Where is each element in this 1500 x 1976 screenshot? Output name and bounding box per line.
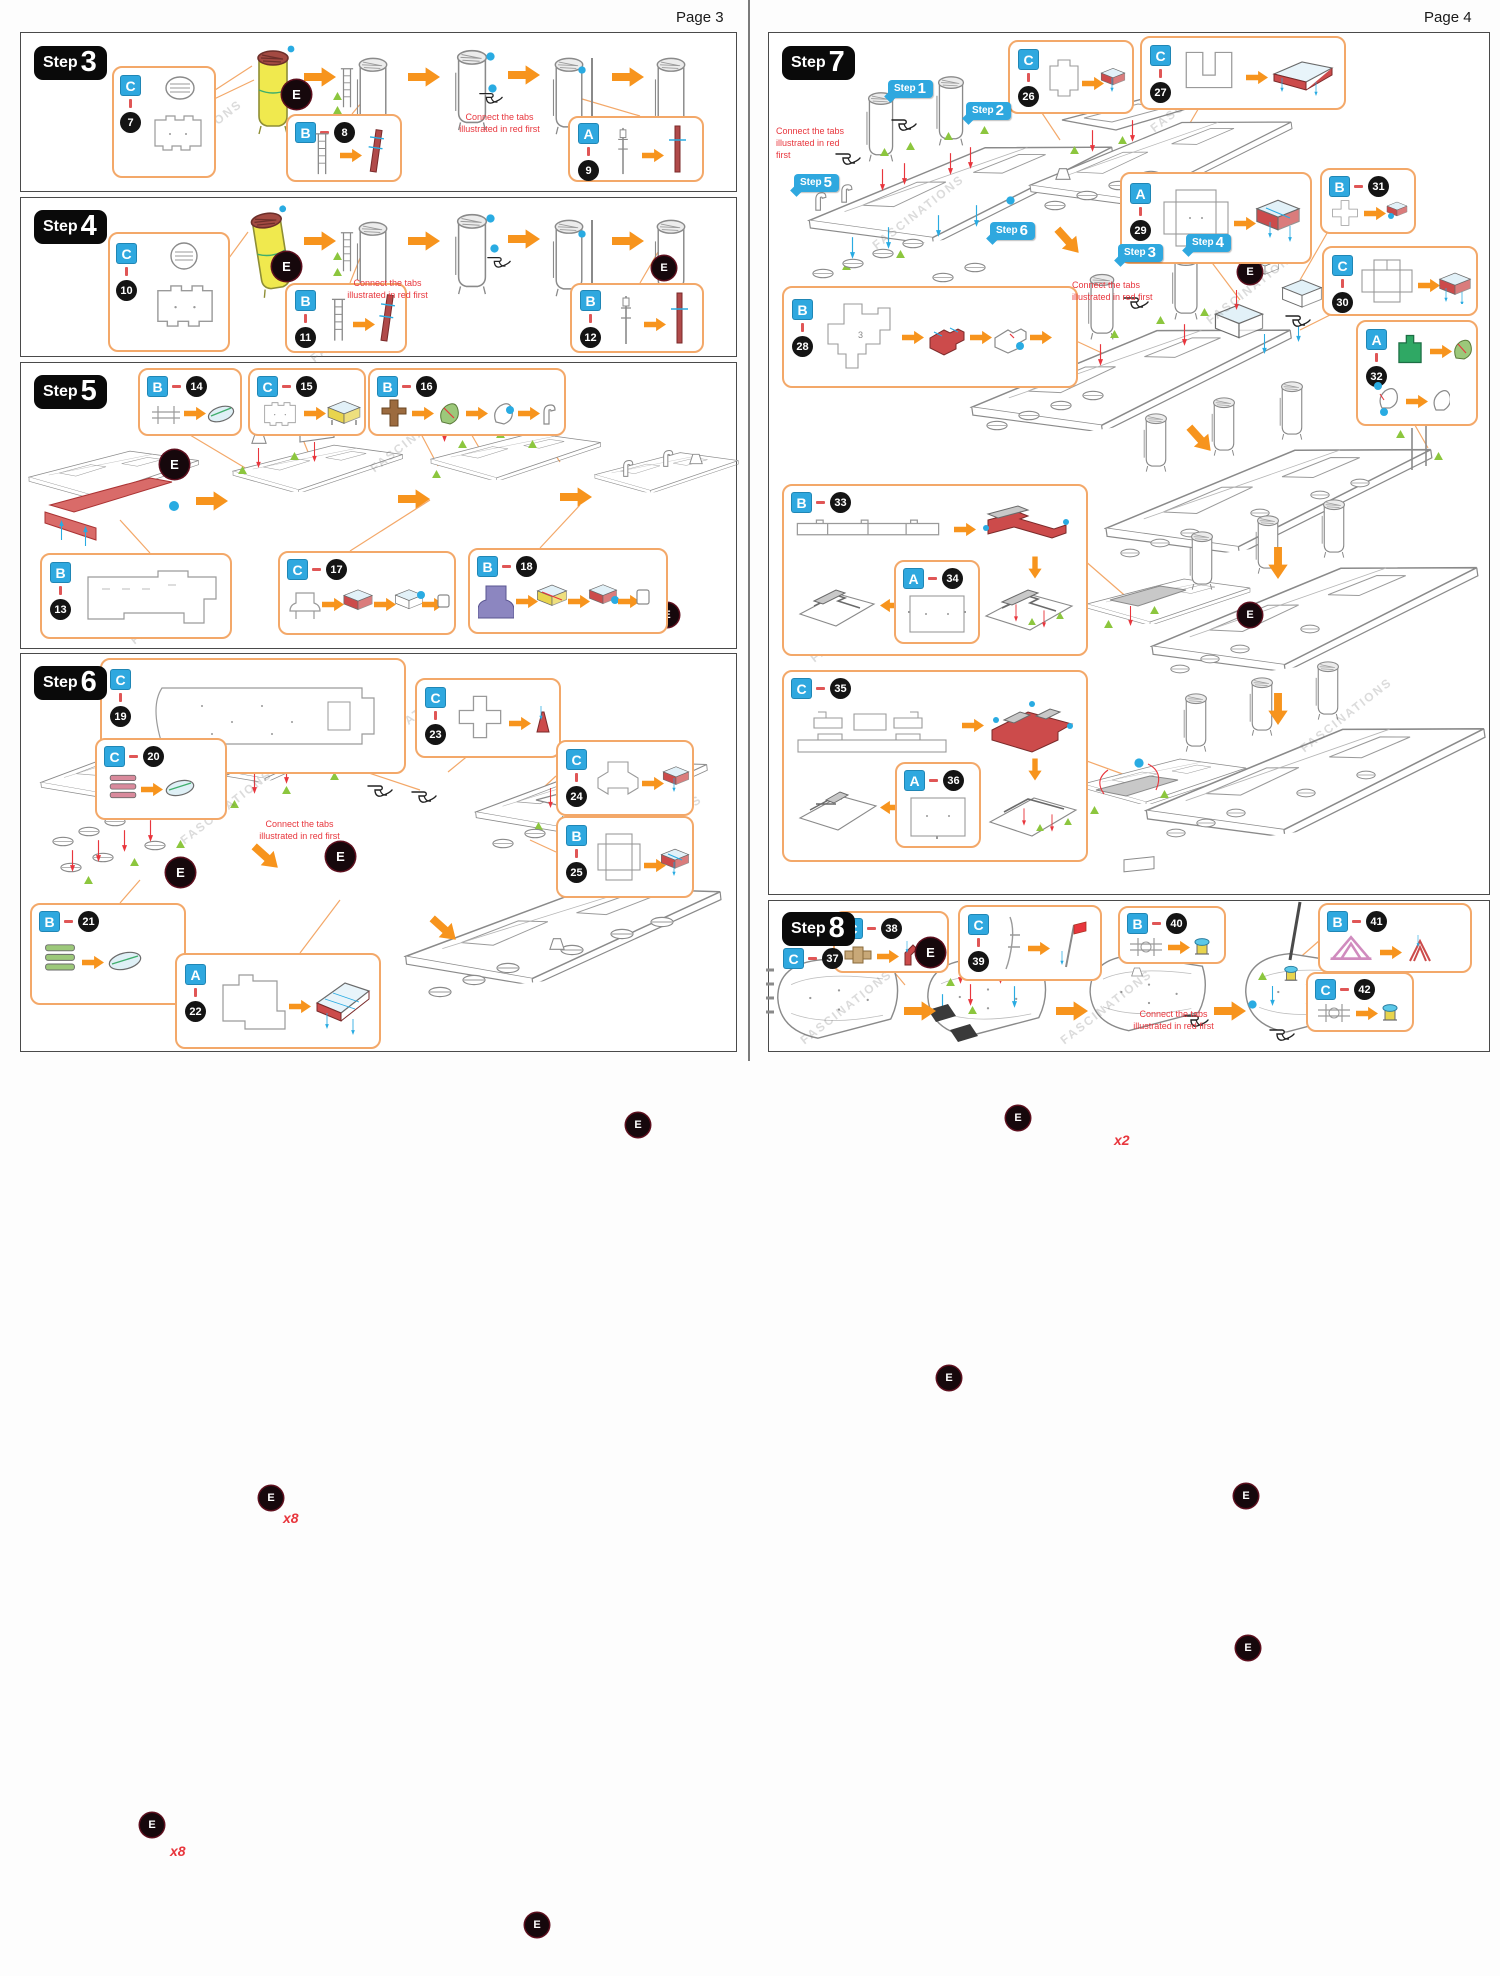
dash (125, 267, 128, 276)
dash (59, 586, 62, 595)
dash (929, 779, 938, 782)
assembled-part-diagram (538, 400, 558, 428)
part-number-badge: 38 (881, 918, 902, 939)
assembled-part-diagram (1438, 270, 1472, 304)
assembled-part-diagram (666, 124, 690, 176)
callout-C26: C26 E (1008, 40, 1134, 114)
arrow-right (516, 594, 538, 609)
part-letter-badge: C (288, 560, 307, 579)
dash (977, 938, 980, 947)
assembled-part-diagram (796, 578, 876, 644)
arrow-right (954, 522, 976, 537)
callout-B41: B41 E x2 (1318, 903, 1472, 973)
part-letter-badge: C (1019, 50, 1038, 69)
flat-part-diagram (1328, 933, 1376, 967)
part-number-badge: 40 (1166, 913, 1187, 934)
flat-part-diagram (478, 580, 514, 622)
arrow-right (466, 406, 488, 421)
dash (129, 99, 132, 108)
part-letter-badge: C (784, 949, 803, 968)
arrow-right (902, 330, 924, 345)
dash (808, 957, 817, 960)
callout-C24: C24 E (556, 740, 694, 816)
part-number-badge: 14 (186, 376, 207, 397)
part-letter-badge: B (581, 291, 600, 310)
e-badge: E (259, 1486, 283, 1510)
callout-A36: A36 (895, 762, 981, 848)
part-number-badge: 39 (968, 951, 989, 972)
callout-B31: B31 E (1320, 168, 1416, 234)
callout-B28: B28 3 E (782, 286, 1078, 388)
dash (816, 501, 825, 504)
flat-part-diagram (996, 913, 1026, 975)
dash (1152, 922, 1161, 925)
e-badge: E (272, 252, 301, 281)
part-letter-badge: C (121, 76, 140, 95)
arrow-right (518, 406, 540, 421)
dash (1341, 279, 1344, 288)
part-letter-badge: C (426, 688, 445, 707)
callout-A22: A22 E (175, 953, 381, 1049)
cyan-dot-marker (168, 500, 180, 512)
part-letter-badge: B (1128, 914, 1147, 933)
e-badge: E (1006, 1106, 1030, 1130)
part-letter-badge: B (378, 377, 397, 396)
flat-part-diagram (1394, 330, 1428, 370)
assembled-part-diagram (364, 128, 390, 176)
callout-C23: C23 E (415, 678, 561, 758)
part-number-badge: 29 (1130, 220, 1151, 241)
e-badge: E (937, 1366, 961, 1390)
arrow-right (1028, 941, 1050, 956)
red-note-step7a: Connect the tabs illustrated in red firs… (776, 125, 854, 161)
part-number-badge: 37 (822, 948, 843, 969)
assembled-part-diagram (990, 316, 1030, 356)
flat-part-diagram (302, 130, 342, 176)
red-note-step7b: Connect the tabs illustrated in red firs… (1072, 279, 1154, 303)
flat-part-diagram (794, 700, 952, 760)
flat-part-diagram (1330, 198, 1362, 228)
arrow-right (412, 406, 434, 421)
callout-B25: B25 E (556, 816, 694, 898)
e-badge: E (916, 938, 945, 967)
page-3-label: Page 3 (676, 9, 724, 26)
e-badge: E (282, 80, 311, 109)
part-letter-badge: B (1328, 912, 1347, 931)
flat-part-diagram (594, 828, 644, 886)
arrow-right (509, 716, 531, 731)
arrow-down (1028, 557, 1043, 579)
dash (282, 385, 291, 388)
callout-B40: B40 E (1118, 906, 1226, 964)
part-letter-badge: C (969, 915, 988, 934)
blue-step-tag-2: Step2 (966, 102, 1011, 120)
part-letter-badge: B (567, 826, 586, 845)
arrow-right (82, 955, 104, 970)
flat-part-diagram (794, 516, 944, 542)
part-number-badge: 17 (326, 559, 347, 580)
step-badge-7: Step7 (782, 46, 855, 80)
e-badge: E (652, 256, 676, 280)
flat-part-diagram (612, 291, 640, 347)
part-letter-badge: A (186, 965, 205, 984)
dash (172, 385, 181, 388)
part-letter-badge: B (51, 563, 70, 582)
callout-C15: C15 E (248, 368, 366, 436)
part-letter-badge: B (793, 300, 812, 319)
part-number-badge: 42 (1354, 979, 1375, 1000)
arrow-right (1168, 940, 1190, 955)
arrow-right (1406, 394, 1428, 409)
part-number-badge: 36 (943, 770, 964, 791)
dash (434, 711, 437, 720)
quantity-multiplier: x2 (1114, 1132, 1130, 1148)
callout-C17: C17 E (278, 551, 456, 635)
part-letter-badge: B (40, 912, 59, 931)
dash (801, 323, 804, 332)
e-badge: E (1236, 1636, 1260, 1660)
callout-B21: B21 E x8 (30, 903, 186, 1005)
dash (575, 773, 578, 782)
arrow-right (1364, 206, 1386, 221)
part-letter-badge: A (904, 569, 923, 588)
blue-step-tag-6: Step6 (990, 222, 1035, 240)
part-number-badge: 22 (185, 1001, 206, 1022)
callout-A32: A32 E x2 (1356, 320, 1478, 426)
callout-A9: A9 E (568, 116, 704, 182)
flat-part-diagram (1178, 46, 1242, 100)
assembled-part-diagram (311, 969, 373, 1037)
flat-part-diagram (1314, 1000, 1354, 1026)
part-number-badge: 20 (143, 746, 164, 767)
assembled-part-diagram (924, 314, 968, 358)
arrow-right (289, 999, 311, 1014)
assembled-part-diagram (434, 398, 462, 428)
e-badge: E (166, 858, 195, 887)
arrow-right (644, 317, 666, 332)
assembled-part-diagram (1428, 384, 1450, 414)
part-number-badge: 23 (425, 724, 446, 745)
assembled-part-diagram (326, 398, 362, 428)
dash (928, 577, 937, 580)
e-badge: E (326, 842, 355, 871)
dash (1352, 920, 1361, 923)
callout-B8: B8 E (286, 114, 402, 182)
page-4-label: Page 4 (1424, 9, 1472, 26)
flat-part-diagram (1126, 934, 1166, 960)
arrow-right (374, 597, 396, 612)
part-letter-badge: A (579, 124, 598, 143)
dash (589, 314, 592, 323)
flat-part-diagram (213, 963, 287, 1039)
assembled-part-diagram (668, 291, 692, 347)
part-letter-badge: C (258, 377, 277, 396)
callout-C10: C10 (108, 232, 230, 352)
dash (129, 755, 138, 758)
part-number-badge: 24 (566, 786, 587, 807)
callout-B18: B18 E x2 (468, 548, 668, 634)
part-number-badge: 28 (792, 336, 813, 357)
part-letter-badge: B (478, 557, 497, 576)
arrow-down (1028, 759, 1043, 781)
arrow-right (1234, 216, 1256, 231)
arrow-right (353, 317, 375, 332)
part-number-badge: 12 (580, 327, 601, 348)
step-number: 3 (81, 48, 97, 77)
flat-part-diagram (1358, 256, 1416, 306)
e-badge: E (1238, 603, 1262, 627)
blue-step-tag-3: Step3 (1118, 244, 1163, 262)
assembled-part-diagram (488, 398, 516, 428)
part-letter-badge: A (1131, 184, 1150, 203)
assembled-part-diagram (662, 764, 690, 794)
assembled-part-diagram (1100, 66, 1128, 96)
red-note-step6: Connect the tabs illustrated in red firs… (252, 818, 347, 842)
part-number-badge: 9 (578, 160, 599, 181)
dash (64, 920, 73, 923)
part-number-badge: 25 (566, 862, 587, 883)
flat-part-diagram (146, 74, 208, 170)
svg-text:3: 3 (858, 330, 863, 340)
e-badge: E (1234, 1484, 1258, 1508)
page-divider (748, 0, 750, 1061)
assembled-part-diagram (984, 780, 1080, 852)
callout-B13: B13 (40, 553, 232, 639)
assembled-part-diagram (1254, 196, 1304, 242)
dash (304, 314, 307, 323)
quantity-multiplier: x8 (283, 1510, 299, 1526)
arrow-right (1246, 70, 1268, 85)
blue-step-tag-5: Step5 (794, 174, 839, 192)
step-badge-5: Step5 (34, 375, 107, 409)
e-badge: E (626, 1113, 650, 1137)
callout-C39: C39 E (958, 905, 1102, 981)
dash (867, 927, 876, 930)
step-badge-4: Step4 (34, 210, 107, 244)
callout-A34: A34 (894, 560, 980, 644)
part-letter-badge: C (1151, 46, 1170, 65)
part-number-badge: 30 (1332, 292, 1353, 313)
assembled-part-diagram (588, 582, 620, 614)
assembled-part-diagram (106, 945, 144, 977)
callout-C42: C42 E (1306, 972, 1414, 1032)
part-number-badge: 35 (830, 678, 851, 699)
part-number-badge: 16 (416, 376, 437, 397)
assembled-part-diagram (986, 690, 1078, 760)
part-letter-badge: B (148, 377, 167, 396)
flat-part-diagram (608, 124, 638, 176)
assembled-part-diagram (206, 400, 236, 428)
part-letter-badge: B (1330, 177, 1349, 196)
arrow-right (642, 148, 664, 163)
part-number-badge: 13 (50, 599, 71, 620)
dash (1340, 988, 1349, 991)
callout-C7: C7 (112, 66, 216, 178)
instruction-sheet: { "pages": {"p3": "Page 3", "p4": "Page … (0, 0, 1500, 1061)
part-number-badge: 33 (830, 492, 851, 513)
callout-B16: B16 E x3 (368, 368, 566, 436)
dash (502, 565, 511, 568)
arrow-right (304, 406, 326, 421)
step-badge-3: Step3 (34, 46, 107, 80)
arrow-right (184, 406, 206, 421)
callout-B12: B12 E (570, 283, 704, 353)
flat-part-diagram (841, 943, 875, 967)
arrow-right (1430, 344, 1452, 359)
part-letter-badge: A (905, 771, 924, 790)
part-number-badge: 21 (78, 911, 99, 932)
assembled-part-diagram (1190, 932, 1214, 960)
red-note-step4: Connect the tabs illustrated in red firs… (340, 277, 435, 301)
flat-part-diagram (82, 563, 222, 629)
dash (1354, 185, 1363, 188)
flat-part-diagram (107, 772, 139, 806)
part-number-badge: 15 (296, 376, 317, 397)
assembled-part-diagram (1378, 998, 1402, 1026)
part-number-badge: 41 (1366, 911, 1387, 932)
dash (194, 988, 197, 997)
assembled-part-diagram (536, 582, 568, 614)
assembled-part-diagram (634, 586, 652, 608)
dash (816, 687, 825, 690)
assembled-part-diagram (660, 846, 690, 880)
dash (1159, 69, 1162, 78)
e-badge: E (525, 1913, 549, 1937)
assembled-part-diagram (394, 587, 426, 617)
dash (1375, 353, 1378, 362)
part-number-badge: 11 (295, 327, 316, 348)
part-letter-badge: C (1333, 256, 1352, 275)
assembled-part-diagram (1052, 917, 1088, 973)
flat-part-diagram (288, 585, 322, 625)
callout-B14: B14 E (138, 368, 242, 436)
assembled-part-diagram (980, 578, 1076, 646)
part-number-badge: 19 (110, 706, 131, 727)
blue-step-tag-4: Step4 (1186, 234, 1231, 252)
part-letter-badge: B (792, 493, 811, 512)
part-letter-badge: A (1367, 330, 1386, 349)
assembled-part-diagram (436, 591, 452, 611)
step-badge-6: Step6 (34, 666, 107, 700)
arrow-right (877, 949, 899, 964)
dash (575, 849, 578, 858)
part-letter-badge: C (105, 747, 124, 766)
dash (119, 693, 122, 702)
flat-part-diagram (906, 592, 968, 636)
part-letter-badge: C (1316, 980, 1335, 999)
arrow-right (1030, 330, 1052, 345)
dash (587, 147, 590, 156)
part-letter-badge: C (567, 750, 586, 769)
callout-C27: C27 E (1140, 36, 1346, 110)
dash (312, 568, 321, 571)
arrow-right (1356, 1006, 1378, 1021)
dash (402, 385, 411, 388)
assembled-part-diagram (1404, 933, 1434, 967)
part-number-badge: 7 (120, 112, 141, 133)
arrow-right (141, 782, 163, 797)
part-number-badge: 26 (1018, 86, 1039, 107)
part-number-badge: 18 (516, 556, 537, 577)
arrow-right (642, 776, 664, 791)
assembled-part-diagram (163, 774, 197, 802)
assembled-part-diagram (529, 704, 555, 738)
assembled-part-diagram (1268, 52, 1338, 100)
callout-C20: C20 E x8 (95, 738, 227, 820)
dash (1027, 73, 1030, 82)
assembled-part-diagram (342, 587, 374, 617)
step-word: Step (43, 54, 78, 72)
part-letter-badge: C (792, 679, 811, 698)
part-letter-badge: C (117, 244, 136, 263)
callout-C37-header: C37 (784, 948, 843, 969)
dash (1139, 207, 1142, 216)
assembled-part-diagram (980, 502, 1072, 558)
arrow-right (970, 330, 992, 345)
part-number-badge: 27 (1150, 82, 1171, 103)
arrow-right (962, 718, 984, 733)
arrow-right (1380, 945, 1402, 960)
assembled-part-diagram (796, 774, 878, 848)
flat-part-diagram (42, 941, 78, 981)
arrow-right (322, 597, 344, 612)
flat-part-diagram (594, 754, 642, 802)
e-badge: E (140, 1813, 164, 1837)
part-letter-badge: B (296, 291, 315, 310)
flat-part-diagram: 3 (820, 294, 902, 380)
red-note-step8: Connect the tabs illustrated in red firs… (1126, 1008, 1221, 1032)
part-number-badge: 31 (1368, 176, 1389, 197)
step-badge-8: Step8 (782, 912, 855, 946)
assembled-part-diagram (1450, 334, 1472, 364)
flat-part-diagram (146, 240, 222, 344)
assembled-part-diagram (1372, 380, 1402, 416)
arrow-right (1418, 278, 1440, 293)
quantity-multiplier: x8 (170, 1843, 186, 1859)
flat-part-diagram (258, 398, 302, 430)
arrow-right (568, 594, 590, 609)
blue-step-tag-1: Step1 (888, 80, 933, 98)
flat-part-diagram (148, 402, 184, 428)
arrow-right (340, 148, 362, 163)
part-number-badge: 10 (116, 280, 137, 301)
red-note-step3: Connect the tabs illustrated in red firs… (452, 111, 547, 135)
assembled-part-diagram (1386, 200, 1410, 226)
callout-C30: C30 E (1322, 246, 1478, 316)
part-letter-badge: C (111, 670, 130, 689)
part-number-badge: 34 (942, 568, 963, 589)
flat-part-diagram (907, 794, 969, 840)
flat-part-diagram (455, 692, 507, 744)
flat-part-diagram (1044, 52, 1084, 104)
flat-part-diagram (378, 396, 410, 430)
e-badge: E (160, 450, 189, 479)
